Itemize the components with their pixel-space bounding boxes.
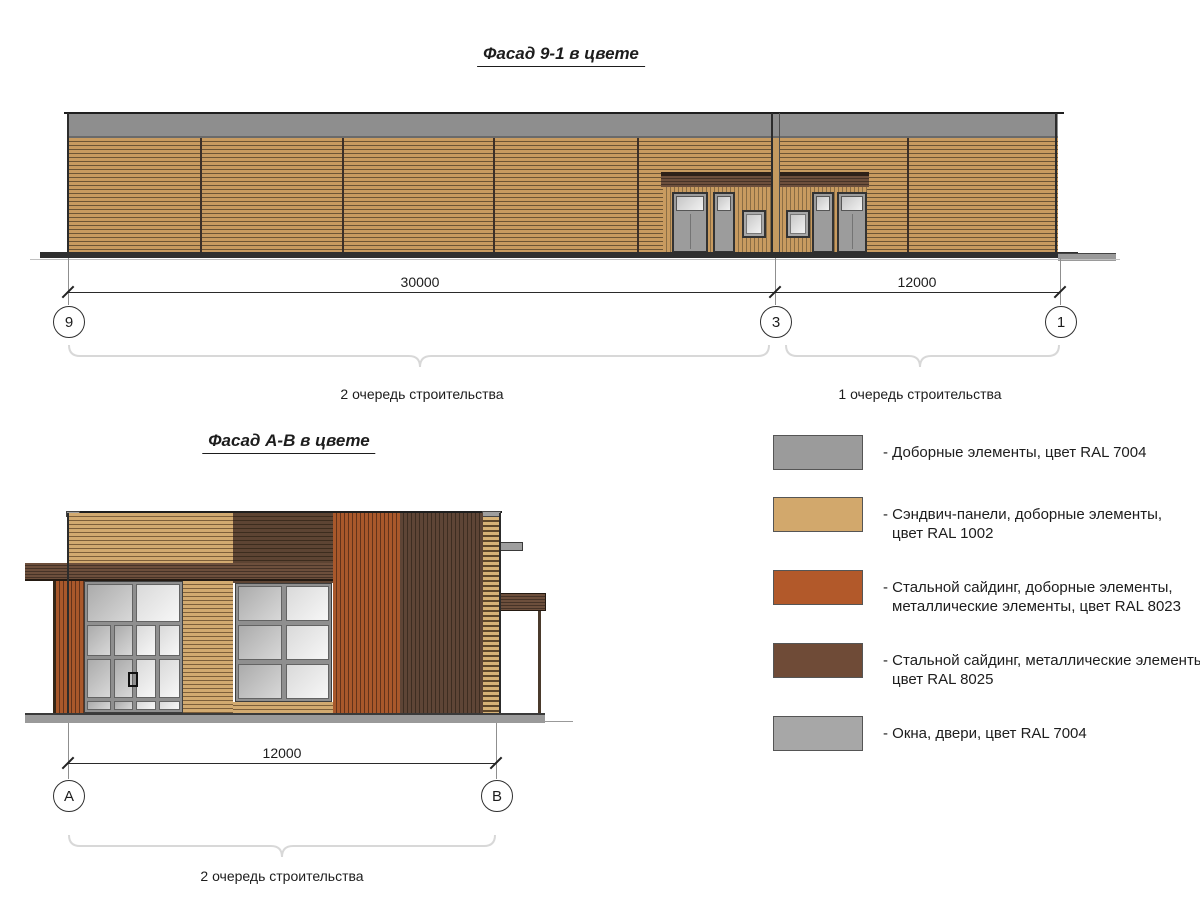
ground-extension-line xyxy=(545,721,573,722)
facade2-left-corner xyxy=(67,513,69,715)
facade1-right-corner xyxy=(1055,113,1057,252)
window-pane xyxy=(238,664,282,699)
door-transom xyxy=(717,196,731,211)
dimension-value-12000: 12000 xyxy=(898,274,937,290)
color-legend: - Доборные элементы, цвет RAL 7004- Сэнд… xyxy=(773,435,1200,751)
window-pane xyxy=(286,664,330,699)
axis-marker-3: 3 xyxy=(760,306,792,338)
facade1-title: Фасад 9-1 в цвете xyxy=(477,44,645,67)
entrance-door-narrow-left xyxy=(713,192,735,253)
glazing-pane xyxy=(87,584,133,622)
legend-color-swatch xyxy=(773,643,863,678)
entrance-side-panel xyxy=(56,581,84,713)
side-canopy xyxy=(500,593,546,611)
glazing-pane xyxy=(159,659,180,698)
entrance-door-wide-left xyxy=(672,192,708,253)
axis-marker-9: 9 xyxy=(53,306,85,338)
panel-joint xyxy=(493,138,495,252)
glazing-pane xyxy=(159,625,180,656)
glazing-pane xyxy=(87,659,111,698)
axis-marker-1: 1 xyxy=(1045,306,1077,338)
window-pane xyxy=(286,586,330,621)
legend-label: - Доборные элементы, цвет RAL 7004 xyxy=(883,443,1146,462)
legend-item: - Доборные элементы, цвет RAL 7004 xyxy=(773,435,1200,470)
phase-brace-bottom xyxy=(68,834,498,860)
entrance-door-narrow-right xyxy=(812,192,834,253)
small-window-left xyxy=(742,210,766,238)
door-transom xyxy=(816,196,830,211)
facade1-parapet-band xyxy=(68,114,1058,138)
entrance-canopy xyxy=(661,176,869,187)
facade2-corner-strip xyxy=(483,517,500,713)
phase2-label-bottom: 2 очередь строительства xyxy=(200,868,363,884)
door-leaf-split xyxy=(852,214,853,249)
phase2-label: 2 очередь строительства xyxy=(340,386,503,402)
panel-joint xyxy=(200,138,202,252)
phase1-label: 1 очередь строительства xyxy=(838,386,1001,402)
axis-extension-line xyxy=(496,723,497,779)
facade2-entrance-canopy xyxy=(25,563,333,581)
axis-extension-line xyxy=(68,723,69,779)
facade2-parapet-sandwich xyxy=(68,513,233,565)
entrance-door-wide-right xyxy=(837,192,867,253)
window-pane xyxy=(286,625,330,660)
legend-label: - Стальной сайдинг, металлические элемен… xyxy=(883,651,1200,689)
dimension-value-12000: 12000 xyxy=(263,745,302,761)
dimension-value-30000: 30000 xyxy=(401,274,440,290)
axis-extension-line xyxy=(1060,258,1061,305)
facade2-darkbrown-siding xyxy=(400,513,483,713)
window-pane xyxy=(238,625,282,660)
small-window-right xyxy=(786,210,810,238)
ground-extension-line xyxy=(30,259,1120,260)
entrance-door-handle xyxy=(128,672,138,687)
glazing-pane xyxy=(136,584,180,622)
phase-joint-line xyxy=(771,113,773,252)
legend-item: - Окна, двери, цвет RAL 7004 xyxy=(773,716,1200,751)
legend-label: - Окна, двери, цвет RAL 7004 xyxy=(883,724,1087,743)
facade1-siding xyxy=(68,138,1058,252)
legend-color-swatch xyxy=(773,435,863,470)
panel-joint xyxy=(637,138,639,252)
glazing-pane xyxy=(87,625,111,656)
glazing-pane xyxy=(136,625,156,656)
legend-item: - Стальной сайдинг, доборные элементы, м… xyxy=(773,570,1200,616)
phase-brace-right xyxy=(785,344,1062,370)
glazing-pane xyxy=(159,701,180,710)
window-glass xyxy=(746,214,762,234)
facade2-glazed-entrance xyxy=(84,581,183,713)
side-ledge xyxy=(500,542,523,551)
facade2-big-window xyxy=(235,583,332,702)
door-transom xyxy=(841,196,863,211)
canopy-post-right xyxy=(538,611,541,713)
legend-color-swatch xyxy=(773,716,863,751)
dimension-line xyxy=(68,292,1060,293)
legend-label: - Сэндвич-панели, доборные элементы, цве… xyxy=(883,505,1162,543)
phase-brace-left xyxy=(68,344,772,370)
glazing-pane xyxy=(136,659,156,698)
dimension-line xyxy=(68,763,496,764)
panel-joint xyxy=(342,138,344,252)
legend-item: - Сэндвич-панели, доборные элементы, цве… xyxy=(773,497,1200,543)
glazing-pane xyxy=(87,701,111,710)
window-pane xyxy=(238,586,282,621)
facade2-window-sill-panel xyxy=(233,702,333,713)
facade2-base xyxy=(25,713,545,723)
glazing-pane xyxy=(114,701,133,710)
door-leaf-split xyxy=(690,214,691,249)
facade2-right-corner xyxy=(499,513,501,713)
glazing-pane xyxy=(114,625,133,656)
axis-extension-line xyxy=(68,258,69,305)
door-transom xyxy=(676,196,704,211)
legend-item: - Стальной сайдинг, металлические элемен… xyxy=(773,643,1200,689)
facade2-title: Фасад А-В в цвете xyxy=(202,431,375,454)
facade2-tan-pier xyxy=(183,581,233,713)
facade1-left-corner xyxy=(67,113,69,252)
phase-joint-line xyxy=(779,113,780,252)
legend-color-swatch xyxy=(773,570,863,605)
legend-color-swatch xyxy=(773,497,863,532)
glazing-pane xyxy=(136,701,156,710)
facade2-orange-siding xyxy=(333,513,400,713)
axis-marker-B: В xyxy=(481,780,513,812)
panel-joint xyxy=(907,138,909,252)
window-glass xyxy=(790,214,806,234)
axis-extension-line xyxy=(775,258,776,305)
facade1-ground xyxy=(40,252,1078,258)
axis-marker-A: А xyxy=(53,780,85,812)
legend-label: - Стальной сайдинг, доборные элементы, м… xyxy=(883,578,1181,616)
drawing-sheet: Фасад 9-1 в цвете Фасад А-В в цвете xyxy=(0,0,1200,900)
